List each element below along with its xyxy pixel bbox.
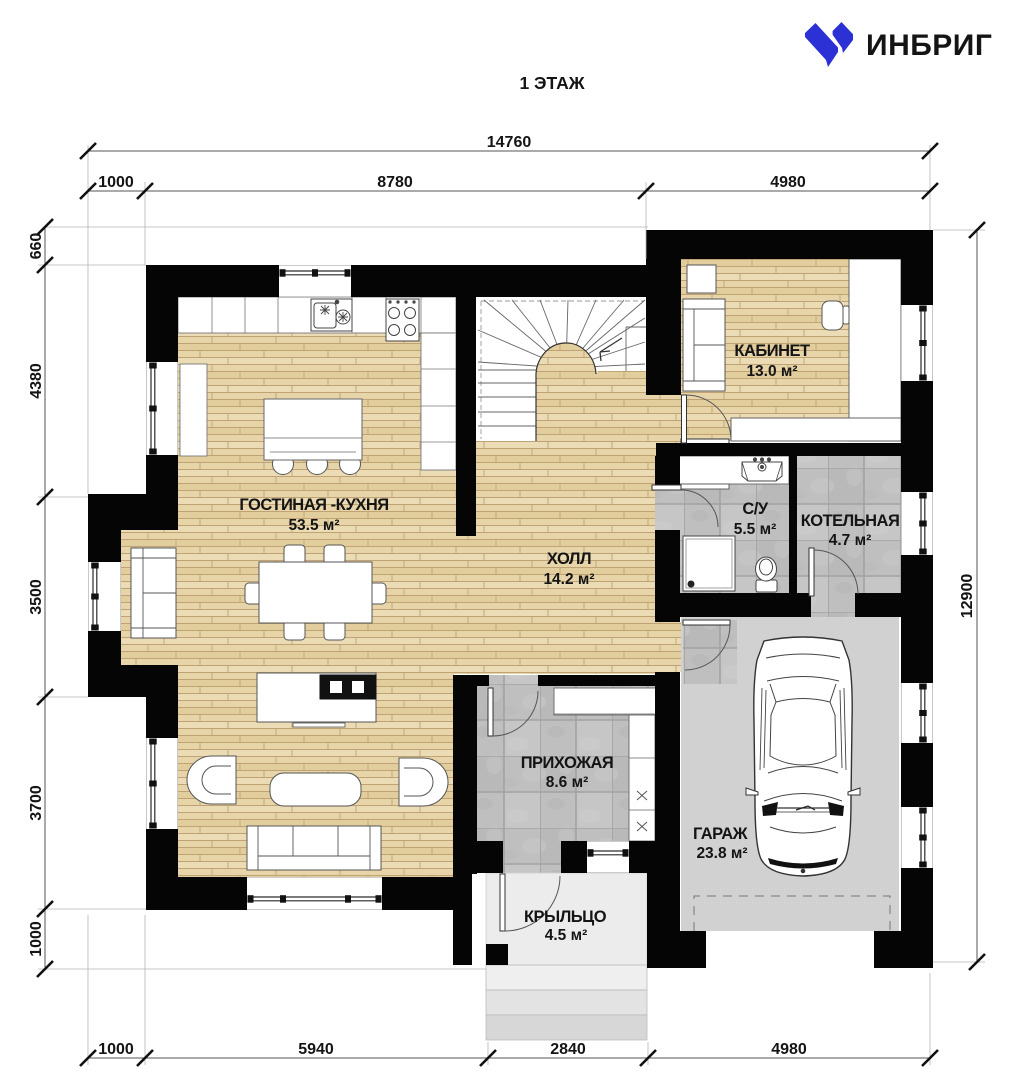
svg-text:1000: 1000 bbox=[28, 921, 45, 957]
svg-text:С/У: С/У bbox=[742, 500, 769, 518]
svg-text:3700: 3700 bbox=[28, 785, 45, 821]
svg-text:1 ЭТАЖ: 1 ЭТАЖ bbox=[519, 73, 584, 93]
svg-text:4980: 4980 bbox=[770, 174, 806, 191]
svg-text:5.5 м²: 5.5 м² bbox=[734, 521, 776, 538]
svg-text:8780: 8780 bbox=[377, 174, 413, 191]
svg-text:ГАРАЖ: ГАРАЖ bbox=[693, 825, 748, 843]
svg-text:12900: 12900 bbox=[959, 574, 976, 619]
svg-text:ПРИХОЖАЯ: ПРИХОЖАЯ bbox=[521, 754, 614, 772]
svg-text:23.8 м²: 23.8 м² bbox=[696, 845, 747, 862]
svg-text:4980: 4980 bbox=[771, 1041, 807, 1058]
svg-text:4380: 4380 bbox=[28, 363, 45, 399]
svg-text:1000: 1000 bbox=[98, 174, 134, 191]
svg-text:660: 660 bbox=[28, 233, 45, 260]
svg-text:КАБИНЕТ: КАБИНЕТ bbox=[734, 342, 810, 360]
svg-text:ГОСТИНАЯ -КУХНЯ: ГОСТИНАЯ -КУХНЯ bbox=[239, 496, 388, 514]
svg-text:8.6 м²: 8.6 м² bbox=[546, 774, 588, 791]
svg-text:4.7 м²: 4.7 м² bbox=[829, 532, 871, 549]
svg-text:2840: 2840 bbox=[550, 1041, 586, 1058]
svg-text:53.5 м²: 53.5 м² bbox=[288, 517, 339, 534]
svg-text:1000: 1000 bbox=[98, 1041, 134, 1058]
svg-text:ХОЛЛ: ХОЛЛ bbox=[547, 550, 591, 568]
svg-text:5940: 5940 bbox=[298, 1041, 334, 1058]
svg-text:3500: 3500 bbox=[28, 579, 45, 615]
svg-text:КОТЕЛЬНАЯ: КОТЕЛЬНАЯ bbox=[801, 512, 900, 530]
svg-text:13.0 м²: 13.0 м² bbox=[746, 363, 797, 380]
svg-text:ИНБРИГ: ИНБРИГ bbox=[866, 29, 992, 62]
svg-text:14760: 14760 bbox=[487, 134, 532, 151]
svg-text:4.5 м²: 4.5 м² bbox=[545, 927, 587, 944]
svg-text:14.2 м²: 14.2 м² bbox=[543, 571, 594, 588]
svg-text:КРЫЛЬЦО: КРЫЛЬЦО bbox=[524, 908, 607, 926]
